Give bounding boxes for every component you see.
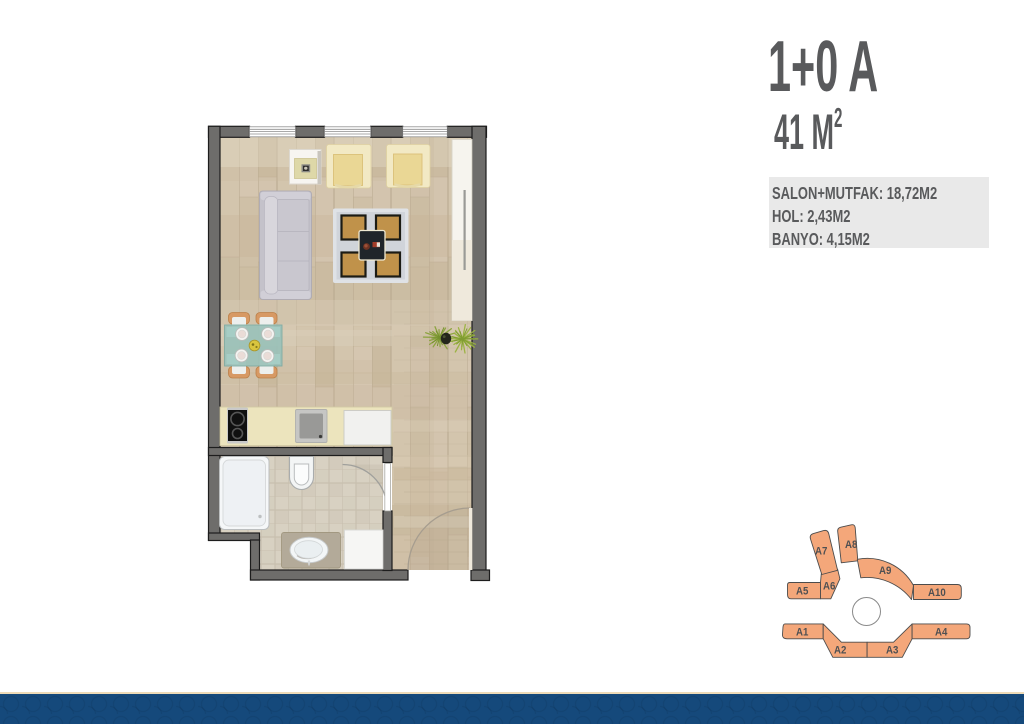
svg-text:A7: A7 — [815, 546, 828, 558]
svg-text:A6: A6 — [823, 581, 836, 593]
svg-text:A8: A8 — [845, 540, 858, 552]
svg-text:A1: A1 — [796, 627, 809, 639]
svg-text:A4: A4 — [935, 627, 948, 639]
svg-text:A3: A3 — [886, 645, 899, 657]
svg-text:A2: A2 — [834, 645, 847, 657]
svg-text:A10: A10 — [928, 588, 946, 600]
svg-text:A5: A5 — [796, 586, 809, 598]
svg-text:A9: A9 — [879, 566, 892, 578]
